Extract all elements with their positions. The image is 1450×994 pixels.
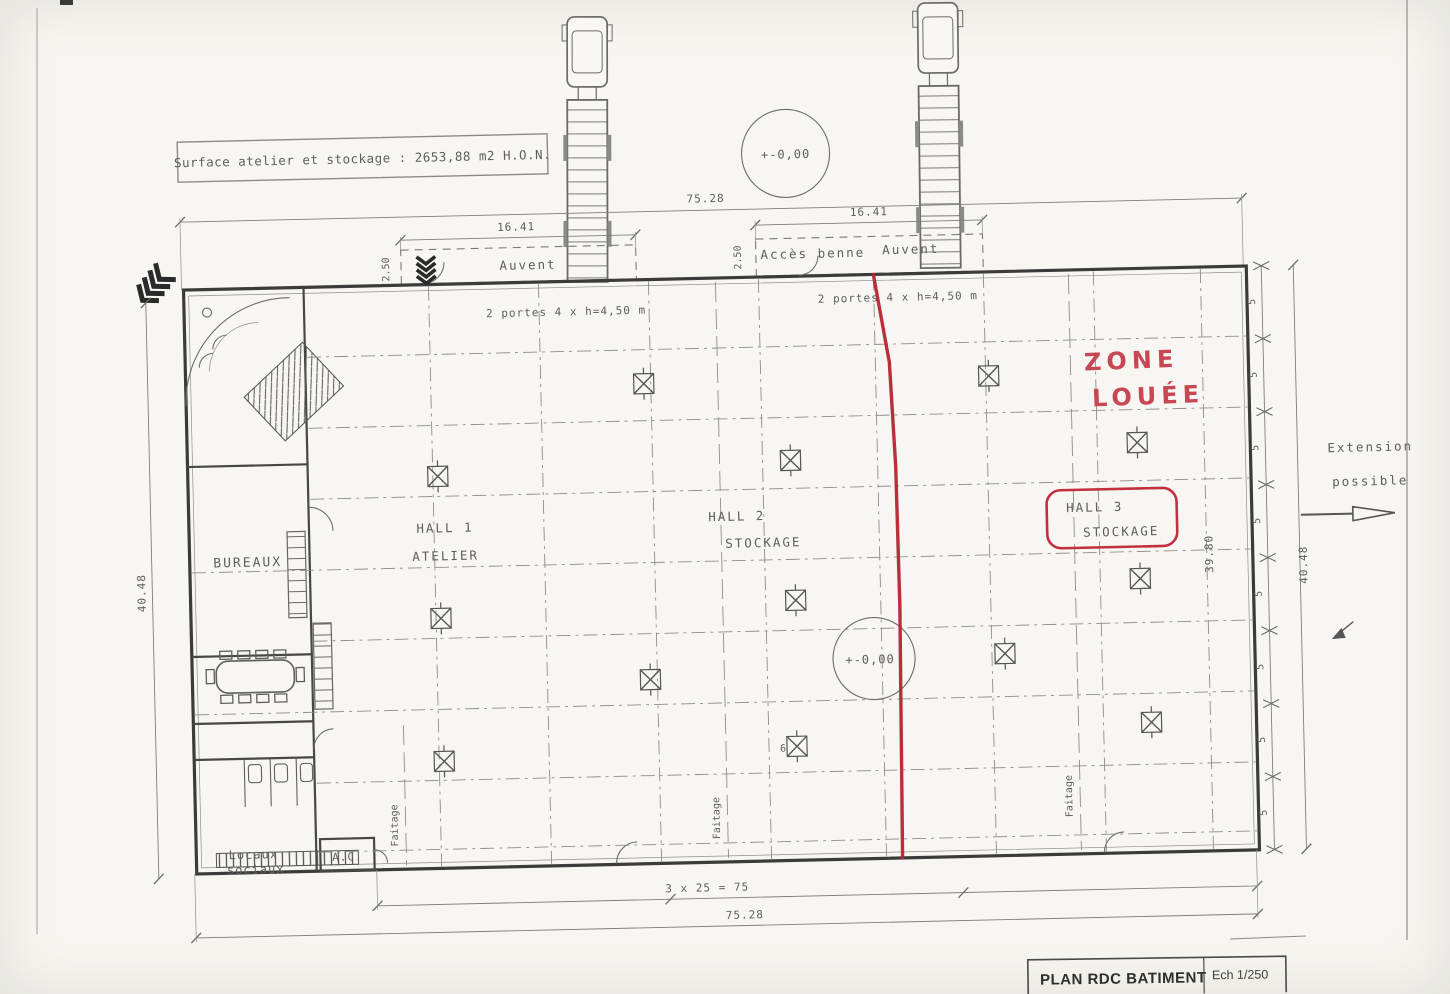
truck-left (562, 17, 612, 282)
acces-benne-label: Accès benne (760, 245, 865, 262)
dim-module: 5 (1254, 591, 1265, 597)
dim-canopy-right: 2.50 (733, 245, 745, 269)
ac-label: A.C. (332, 850, 363, 864)
office-block: A.C. BUREAUX Locaux sociaux (184, 296, 388, 878)
faitage-label: Faitage (389, 804, 401, 846)
title-block: PLAN RDC BATIMENT Ech 1/250 (1028, 956, 1286, 994)
dim-module: 5 (1257, 737, 1268, 743)
level-top-text: +-0,00 (761, 147, 811, 162)
plan-drawing: Surface atelier et stockage : 2653,88 m2… (122, 0, 1423, 944)
dim-top-overall: 75.28 (686, 192, 724, 206)
faitage-labels: Faitage Faitage Faitage (389, 775, 1076, 847)
dim-bottom-bays: 3 x 25 = 75 (665, 880, 749, 895)
locaux-label-1: Locaux (229, 847, 279, 862)
chevron-marker-icon (416, 257, 435, 284)
floor-plan-svg: Surface atelier et stockage : 2653,88 m2… (0, 0, 1450, 994)
faitage-label: Faitage (711, 797, 723, 839)
dim-canopy-left: 2.50 (381, 257, 393, 281)
zone-louee-line1: ZONE (1084, 345, 1179, 377)
left-dimension: 40.48 (129, 298, 164, 884)
extension-line1: Extension (1327, 438, 1413, 455)
top-dimensions: 75.28 16.41 16.41 (175, 180, 1249, 290)
wc-stalls (244, 757, 313, 807)
dim-height-right: 40.48 (1297, 546, 1311, 584)
zone-louee-annotation: ZONE LOUÉE (1084, 344, 1205, 412)
zone-louee-line2: LOUÉE (1091, 379, 1204, 412)
building-shell (183, 244, 1259, 874)
extension-arrow-icon (1353, 506, 1395, 521)
dim-bay-right: 16.41 (850, 205, 888, 219)
right-dimension: 40.48 (1288, 260, 1316, 854)
doors-left-label: 2 portes 4 x h=4,50 m (486, 304, 646, 321)
dim-module: 5 (1249, 372, 1260, 378)
hall2-label-2: STOCKAGE (725, 534, 802, 551)
dim-module: 5 (1259, 810, 1270, 816)
dim-height-inner: 39.80 (1202, 535, 1216, 573)
faitage-label: Faitage (1064, 775, 1076, 817)
level-marker-top: +-0,00 (741, 108, 831, 198)
scanned-floor-plan-page: Surface atelier et stockage : 2653,88 m2… (0, 0, 1450, 994)
locaux-label-2: sociaux (227, 862, 285, 877)
meeting-table (206, 649, 305, 703)
hall3-red-outline (1046, 488, 1177, 549)
bureaux-label: BUREAUX (213, 555, 282, 572)
column-note: 6 (780, 744, 786, 755)
auvent-right-label: Auvent (882, 241, 939, 257)
level-marker-middle: +-0,00 (832, 617, 916, 701)
level-middle-text: +-0,00 (845, 652, 895, 667)
hall2-label-1: HALL 2 (708, 508, 765, 524)
truck-right (913, 3, 966, 269)
doors-right-label: 2 portes 4 x h=4,50 m (818, 289, 978, 306)
stair-ladder (313, 623, 333, 709)
hall3-label-1: HALL 3 (1066, 499, 1123, 515)
hall3-label-2: STOCKAGE (1083, 523, 1160, 540)
dim-bottom-overall: 75.28 (726, 908, 764, 922)
extension-annotation: Extension possible (1299, 438, 1417, 640)
dim-height-left: 40.48 (135, 574, 149, 612)
auvent-left-label: Auvent (499, 257, 556, 273)
surface-note-text: Surface atelier et stockage : 2653,88 m2… (174, 147, 551, 171)
extension-line2: possible (1332, 472, 1409, 489)
title-block-title: PLAN RDC BATIMENT (1040, 969, 1207, 988)
hall1-label-2: ATELIER (412, 547, 479, 564)
dim-module: 5 (1252, 518, 1263, 524)
chevron-marker-icon (132, 263, 175, 308)
hall-labels: HALL 1 ATELIER HALL 2 STOCKAGE HALL 3 ST… (411, 488, 1177, 564)
columns: 6 (425, 356, 1162, 777)
hall1-label-1: HALL 1 (416, 520, 473, 536)
stair-ladder (287, 531, 307, 617)
dim-module: 5 (1255, 664, 1266, 670)
surface-note-box: Surface atelier et stockage : 2653,88 m2… (174, 134, 552, 183)
dim-module: 5 (1250, 445, 1261, 451)
dim-bay-left: 16.41 (497, 220, 535, 234)
dim-module: 5 (1247, 299, 1258, 305)
title-block-scale: Ech 1/250 (1212, 967, 1269, 982)
